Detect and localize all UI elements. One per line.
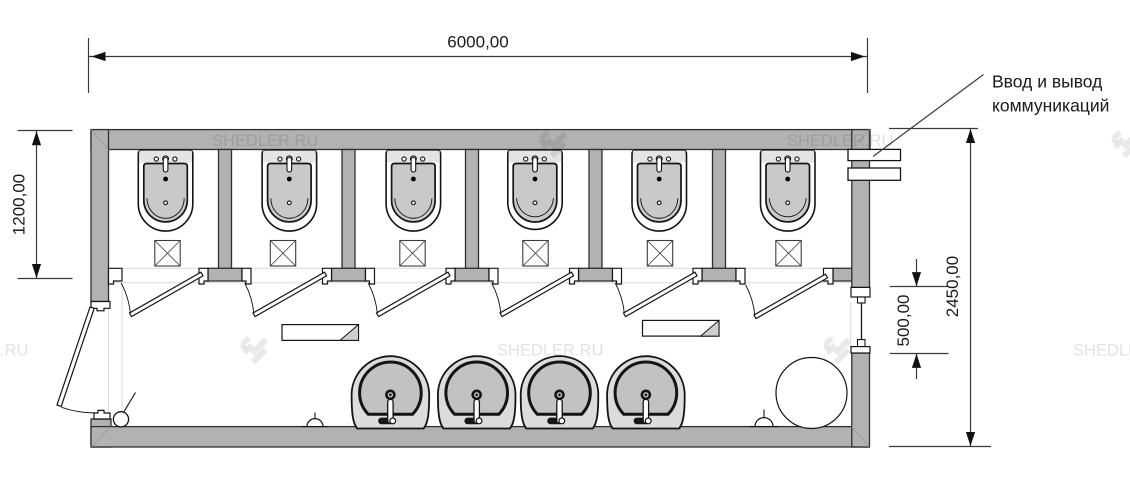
- svg-text:2450,00: 2450,00: [943, 256, 962, 317]
- svg-text:1200,00: 1200,00: [10, 174, 29, 235]
- svg-text:6000,00: 6000,00: [447, 33, 508, 52]
- svg-text:SHEDLER.RU: SHEDLER.RU: [787, 132, 893, 150]
- svg-text:SHEDLER.RU: SHEDLER.RU: [0, 342, 28, 360]
- svg-text:SHEDLER.RU: SHEDLER.RU: [212, 132, 318, 150]
- svg-text:SHEDLER.RU: SHEDLER.RU: [497, 342, 603, 360]
- svg-text:SHEDLER.RU: SHEDLER.RU: [1073, 342, 1130, 360]
- svg-text:Ввод и вывод: Ввод и вывод: [992, 72, 1102, 92]
- svg-text:коммуникаций: коммуникаций: [992, 96, 1109, 116]
- svg-text:500,00: 500,00: [894, 295, 913, 347]
